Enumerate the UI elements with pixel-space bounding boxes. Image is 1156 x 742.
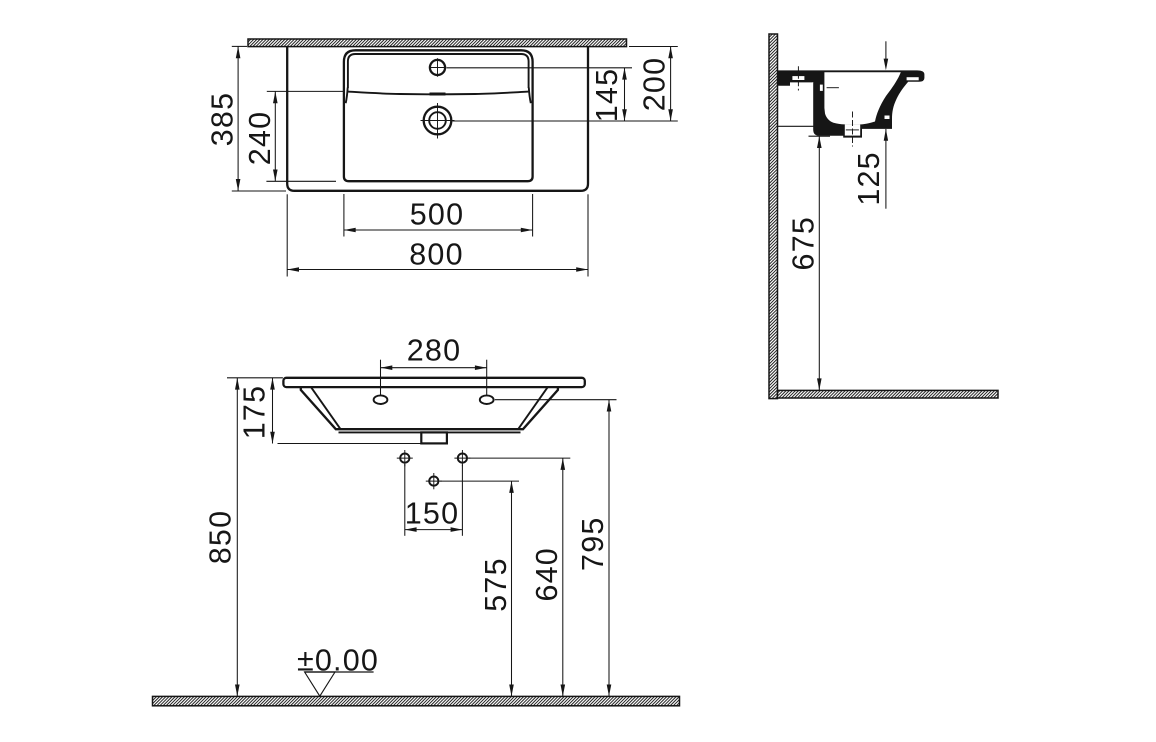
svg-text:200: 200 — [638, 57, 672, 112]
svg-text:795: 795 — [576, 516, 610, 571]
svg-text:150: 150 — [405, 496, 460, 530]
svg-text:575: 575 — [479, 557, 513, 612]
svg-text:280: 280 — [407, 333, 462, 367]
svg-text:500: 500 — [410, 198, 465, 232]
svg-text:850: 850 — [204, 510, 238, 565]
svg-text:385: 385 — [206, 92, 240, 147]
svg-text:125: 125 — [852, 151, 886, 206]
svg-text:145: 145 — [590, 68, 624, 123]
svg-text:640: 640 — [530, 547, 564, 602]
svg-text:800: 800 — [409, 238, 464, 272]
svg-text:675: 675 — [786, 216, 820, 271]
svg-text:175: 175 — [238, 385, 272, 440]
svg-text:240: 240 — [243, 111, 277, 166]
